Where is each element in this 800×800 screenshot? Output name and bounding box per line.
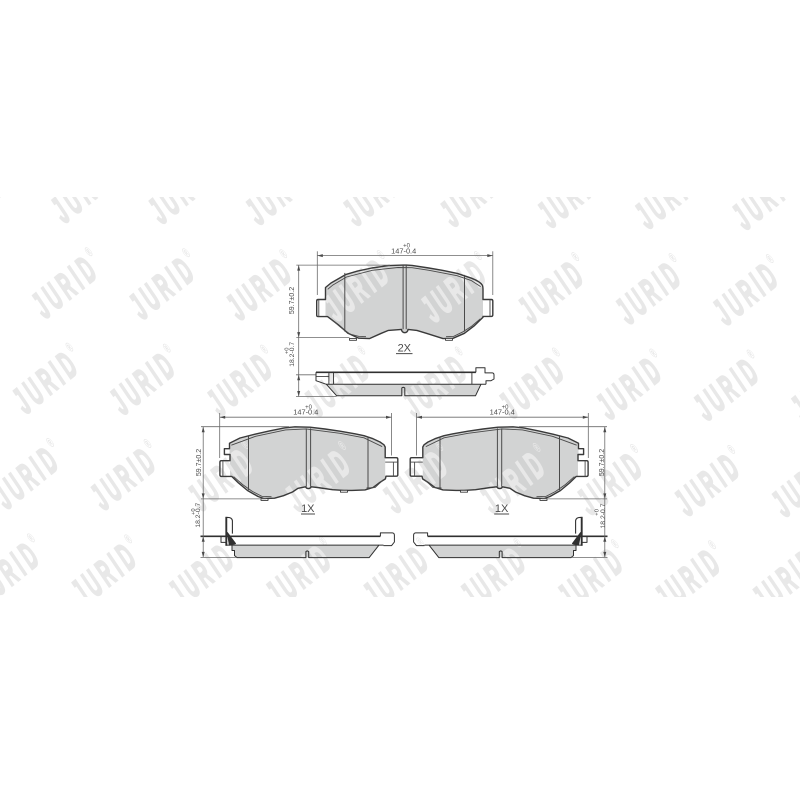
svg-text:+0: +0 bbox=[502, 405, 510, 411]
svg-text:+0: +0 bbox=[595, 509, 601, 516]
svg-text:18.2-0.7: 18.2-0.7 bbox=[600, 503, 607, 528]
svg-text:+0: +0 bbox=[403, 243, 411, 249]
svg-text:59.7±0.2: 59.7±0.2 bbox=[196, 449, 203, 476]
svg-text:1X: 1X bbox=[495, 503, 509, 515]
svg-text:+0: +0 bbox=[305, 405, 313, 411]
svg-text:59.7±0.2: 59.7±0.2 bbox=[289, 287, 296, 314]
svg-text:1X: 1X bbox=[301, 503, 315, 515]
svg-text:+0: +0 bbox=[285, 347, 291, 354]
svg-text:59.7±0.2: 59.7±0.2 bbox=[599, 449, 606, 476]
svg-text:+0: +0 bbox=[191, 508, 197, 515]
svg-text:2X: 2X bbox=[398, 343, 412, 355]
